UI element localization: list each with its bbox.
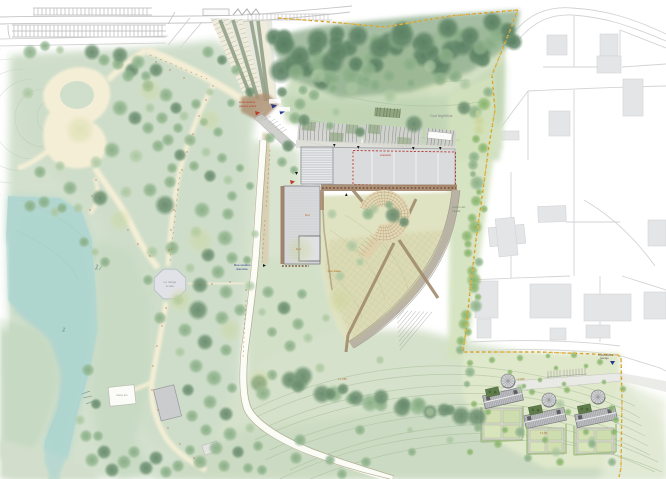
svg-text:Haus am: Haus am [116, 393, 128, 397]
svg-text:R+2: R+2 [305, 213, 310, 217]
svg-text:± 250: ± 250 [518, 377, 525, 381]
svg-text:Vielfalt: Vielfalt [452, 209, 461, 213]
svg-text:à vélo: à vélo [166, 284, 174, 288]
svg-text:Garage: Garage [600, 356, 609, 360]
svg-text:R+1: R+1 [296, 247, 301, 251]
svg-text:extension: extension [380, 153, 392, 157]
svg-text:cour basse: cour basse [328, 269, 341, 273]
svg-text:sortie secours: sortie secours [239, 100, 256, 104]
svg-text:Oud Nightfliuk: Oud Nightfliuk [430, 114, 453, 118]
svg-text:parvis d entrée: parvis d entrée [239, 104, 257, 108]
svg-text:réservée: réservée [236, 267, 248, 271]
svg-text:± 1.250: ± 1.250 [338, 377, 347, 381]
svg-text:± 1.80: ± 1.80 [540, 431, 548, 435]
